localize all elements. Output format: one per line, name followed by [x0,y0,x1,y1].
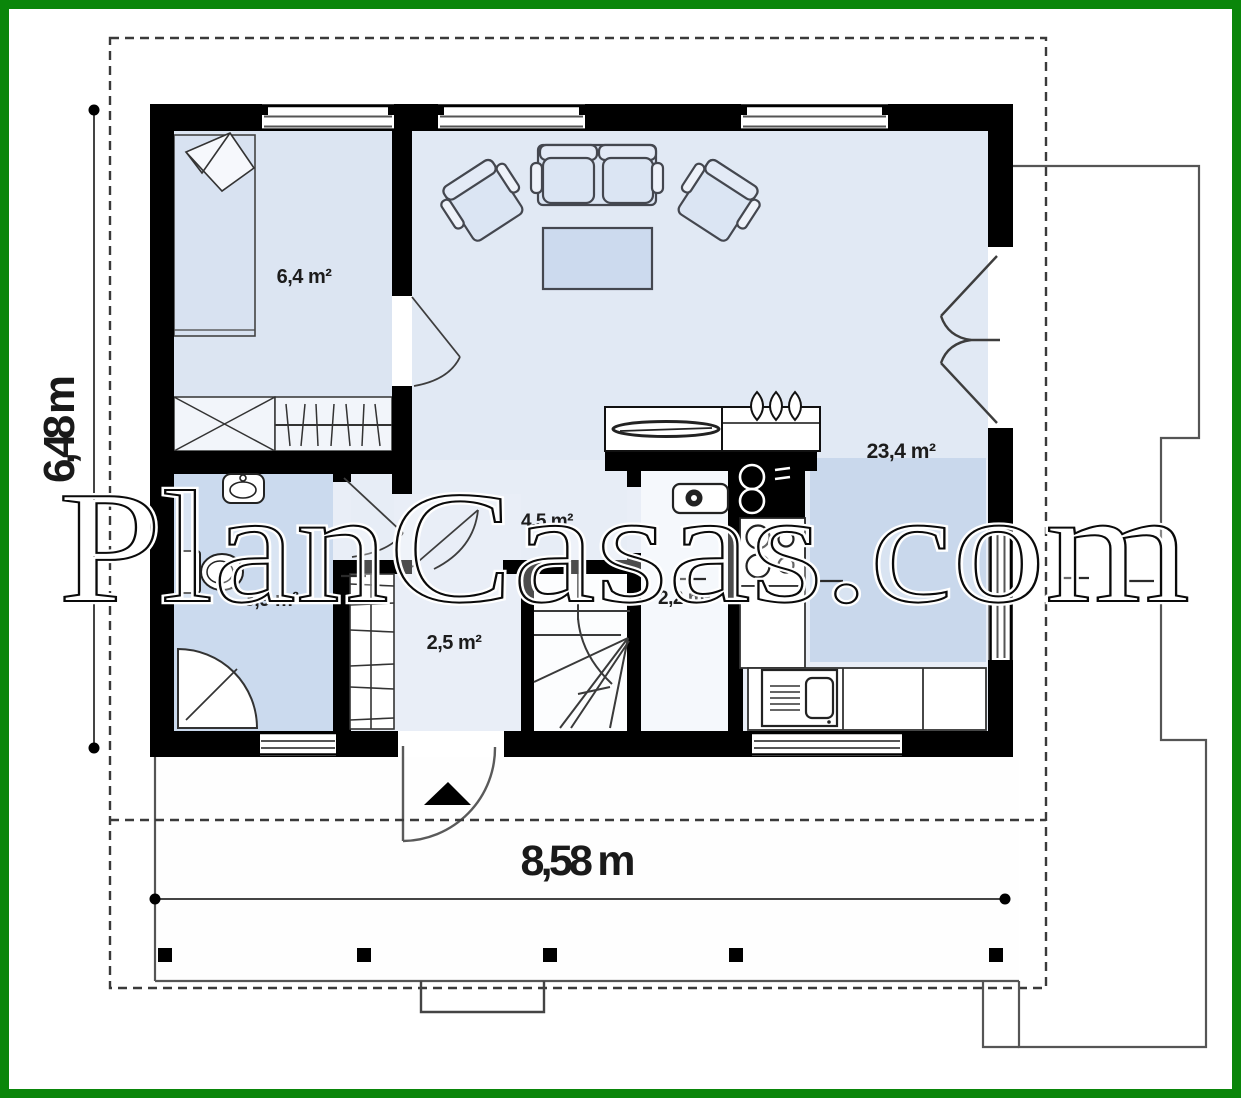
svg-text:6,4 m²: 6,4 m² [277,266,333,288]
svg-text:8,58 m: 8,58 m [521,837,636,885]
svg-text:PlanCasas.com: PlanCasas.com [58,458,1190,636]
